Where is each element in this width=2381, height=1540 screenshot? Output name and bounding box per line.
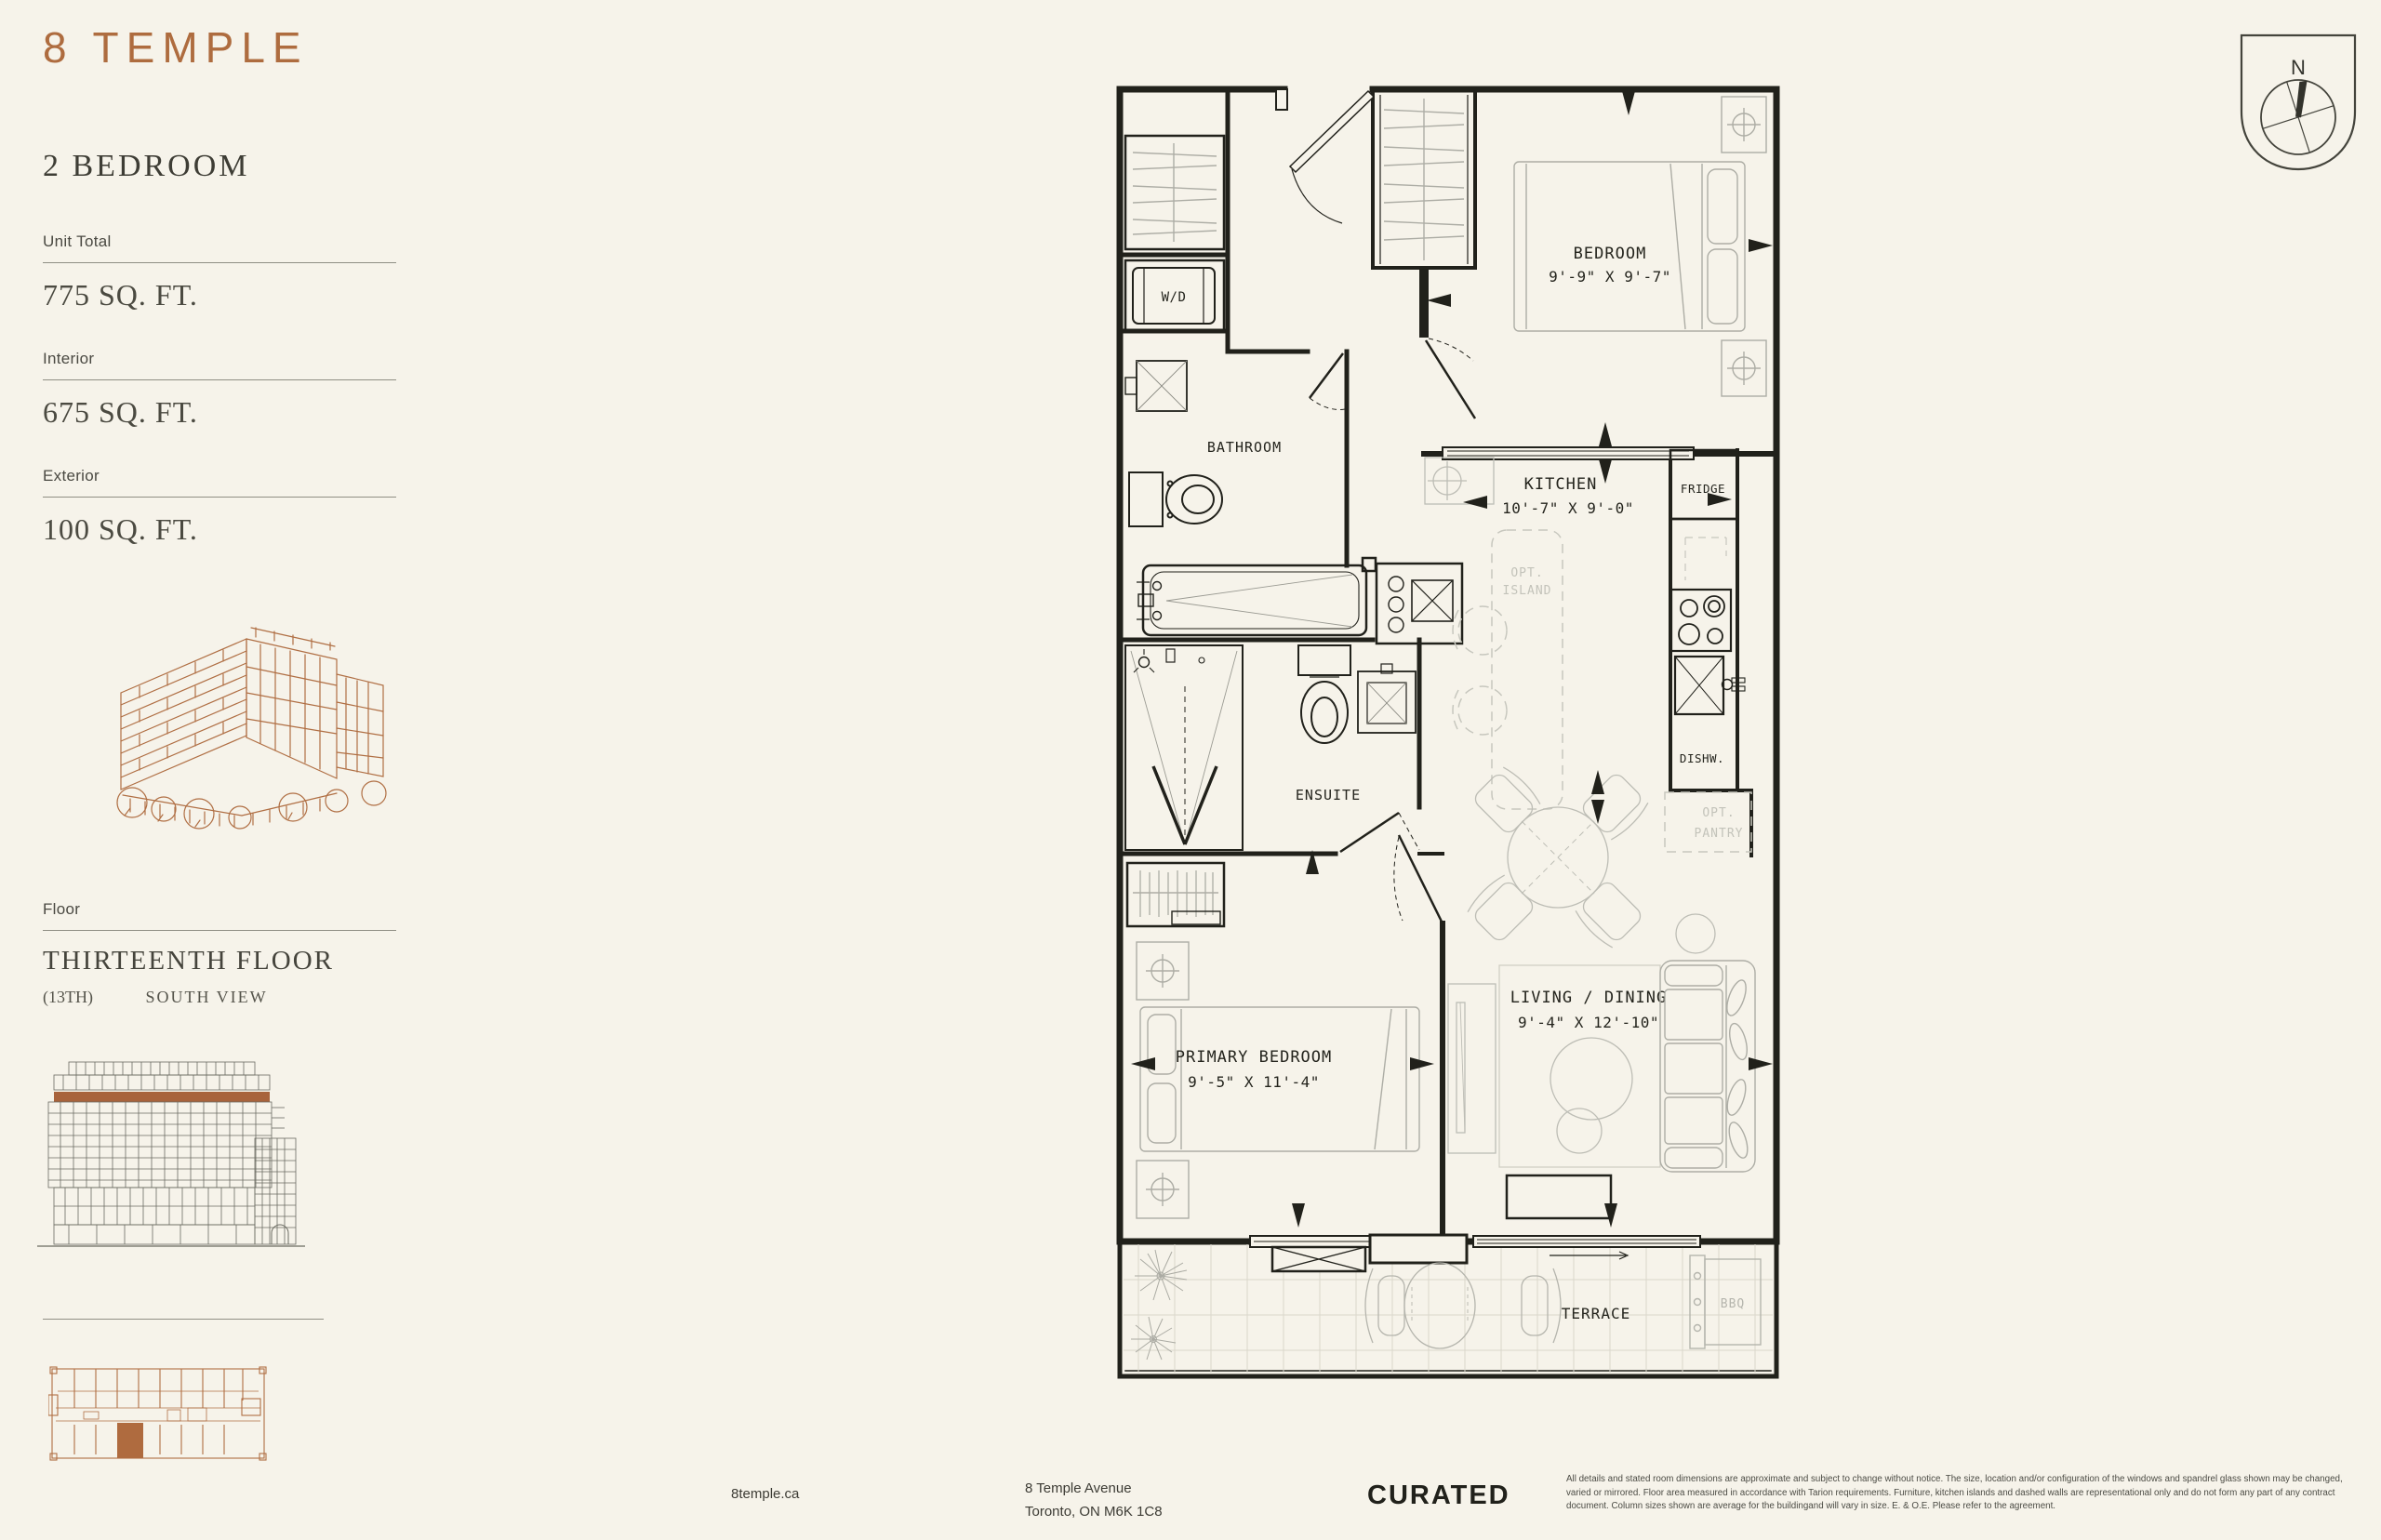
slider-bowtie-up-icon	[1599, 422, 1612, 446]
kitchen-label: KITCHEN	[1524, 475, 1598, 494]
living-right-arrow-icon	[1749, 1057, 1773, 1070]
slider-bowtie-down-icon	[1599, 459, 1612, 484]
bathroom-label: BATHROOM	[1207, 439, 1282, 456]
primary-window-arrow-icon	[1292, 1203, 1305, 1228]
coffee-tables	[1550, 1038, 1632, 1153]
foyer-closet	[1125, 136, 1224, 249]
primary-nightstand-bottom	[1137, 1161, 1189, 1218]
highlighted-floor-band	[54, 1092, 270, 1102]
bedroom-top-arrow-icon	[1622, 91, 1635, 115]
terrace-plants	[1131, 1250, 1187, 1360]
living-dining-dims: 9'-4" X 12'-10"	[1518, 1014, 1659, 1031]
compass-north-label: N	[2291, 56, 2306, 79]
primary-left-arrow-icon	[1131, 1057, 1155, 1070]
optional-island-label-1: OPT.	[1510, 566, 1543, 580]
dishwasher-label: DISHW.	[1680, 751, 1724, 765]
dining-bowtie-down-icon	[1591, 800, 1604, 824]
ensuite-shower	[1125, 645, 1243, 850]
primary-bedroom-dims: 9'-5" X 11'-4"	[1188, 1073, 1320, 1091]
bathroom-door	[1310, 353, 1345, 410]
floor-name: THIRTEENTH FLOOR	[43, 946, 396, 976]
footer-website: 8temple.ca	[731, 1486, 799, 1502]
sofa-pillows	[1723, 977, 1751, 1160]
stat-value: 100 SQ. FT.	[43, 512, 396, 547]
media-bench	[1507, 1175, 1611, 1218]
upper-cabinet-dashed	[1685, 538, 1726, 580]
kitchen-sink	[1675, 657, 1745, 714]
floor-plan-drawing: W/D BEDROOM 9'-9" X 9'-7"	[1112, 82, 1782, 1384]
living-slider-door	[1473, 1236, 1700, 1259]
ensuite-vanity	[1358, 664, 1416, 733]
terrace-label: TERRACE	[1562, 1305, 1630, 1322]
living-window-arrow-icon	[1604, 1203, 1617, 1228]
floor-subtitle: (13TH) SOUTH VIEW	[43, 988, 396, 1007]
stat-exterior: Exterior 100 SQ. FT.	[43, 467, 396, 547]
unit-location-marker	[117, 1423, 143, 1458]
sofa	[1660, 961, 1755, 1172]
primary-bedroom-label: PRIMARY BEDROOM	[1176, 1048, 1333, 1067]
wall-pier	[1370, 1235, 1467, 1263]
north-compass-icon: N	[2228, 30, 2368, 180]
ensuite-toilet	[1298, 645, 1350, 743]
primary-bedroom-door	[1394, 835, 1443, 923]
bbq-label: BBQ	[1721, 1297, 1745, 1311]
entry-door	[1276, 89, 1374, 223]
stat-label: Interior	[43, 350, 396, 380]
ensuite-door	[1340, 813, 1419, 852]
optional-pantry-label-1: OPT.	[1702, 806, 1735, 820]
key-plan	[48, 1354, 272, 1475]
stat-label: Exterior	[43, 467, 396, 498]
stat-value: 675 SQ. FT.	[43, 395, 396, 430]
building-illustration	[102, 581, 423, 846]
dining-set	[1465, 764, 1650, 949]
kitchen-arrow-icon	[1463, 496, 1487, 509]
footer-disclaimer: All details and stated room dimensions a…	[1566, 1473, 2352, 1514]
closet-wall-stub	[1419, 268, 1429, 338]
bathroom-toilet	[1129, 472, 1222, 526]
footer-address-line2: Toronto, ON M6K 1C8	[1025, 1500, 1163, 1523]
optional-island	[1453, 530, 1563, 809]
dining-bowtie-up-icon	[1591, 770, 1604, 794]
building-elevation	[32, 1058, 311, 1281]
bathroom-sink	[1125, 361, 1187, 411]
fridge-label: FRIDGE	[1681, 482, 1725, 496]
footer-brand-logo: CURATED	[1367, 1480, 1510, 1511]
cooktop	[1671, 590, 1731, 651]
optional-pantry-label-2: PANTRY	[1695, 827, 1744, 841]
floor-plan-sheet: 8 TEMPLE 2 BEDROOM Unit Total 775 SQ. FT…	[0, 0, 2381, 1540]
bedroom-door	[1426, 339, 1475, 418]
footer-address-line1: 8 Temple Avenue	[1025, 1477, 1163, 1500]
bedroom-closet	[1380, 95, 1468, 264]
ensuite-label: ENSUITE	[1296, 787, 1361, 803]
stove	[1377, 564, 1462, 644]
bedroom-right-arrow-icon	[1749, 239, 1773, 252]
floor-number: (13TH)	[43, 988, 93, 1006]
sidebar-divider	[43, 1319, 324, 1320]
optional-island-label-2: ISLAND	[1503, 584, 1552, 598]
primary-window	[1250, 1236, 1373, 1247]
stat-label: Unit Total	[43, 232, 396, 263]
floor-view: SOUTH VIEW	[145, 988, 267, 1006]
bathroom-tub	[1137, 565, 1366, 635]
washer-dryer-closet: W/D	[1125, 260, 1224, 331]
primary-right-arrow-icon	[1410, 1057, 1434, 1070]
floor-lamp	[1676, 914, 1715, 953]
unit-stats: Unit Total 775 SQ. FT. Interior 675 SQ. …	[43, 232, 396, 584]
unit-type-title: 2 BEDROOM	[43, 149, 250, 184]
optional-pantry	[1665, 792, 1751, 852]
window-bay-box	[1272, 1247, 1365, 1271]
footer-address: 8 Temple Avenue Toronto, ON M6K 1C8	[1025, 1477, 1163, 1523]
brand-logo: 8 TEMPLE	[43, 22, 309, 73]
bedroom-nightstand-bottom	[1722, 340, 1766, 396]
washer-dryer-label: W/D	[1162, 290, 1187, 305]
stat-value: 775 SQ. FT.	[43, 278, 396, 312]
bedroom-label: BEDROOM	[1574, 245, 1647, 263]
stat-interior: Interior 675 SQ. FT.	[43, 350, 396, 430]
terrace-bistro-set	[1365, 1263, 1561, 1348]
kitchen-dims: 10'-7" X 9'-0"	[1502, 499, 1634, 517]
floor-info: Floor THIRTEENTH FLOOR (13TH) SOUTH VIEW	[43, 900, 396, 1007]
primary-nightstand-top	[1137, 942, 1189, 1000]
bedroom-nightstand-top	[1722, 97, 1766, 153]
living-dining-label: LIVING / DINING	[1510, 989, 1668, 1007]
floor-label: Floor	[43, 900, 396, 931]
bedroom-dims: 9'-9" X 9'-7"	[1549, 268, 1671, 285]
stat-unit-total: Unit Total 775 SQ. FT.	[43, 232, 396, 312]
closet-arrow-icon	[1427, 294, 1451, 307]
tv-console	[1448, 984, 1496, 1153]
primary-closet	[1127, 863, 1224, 926]
